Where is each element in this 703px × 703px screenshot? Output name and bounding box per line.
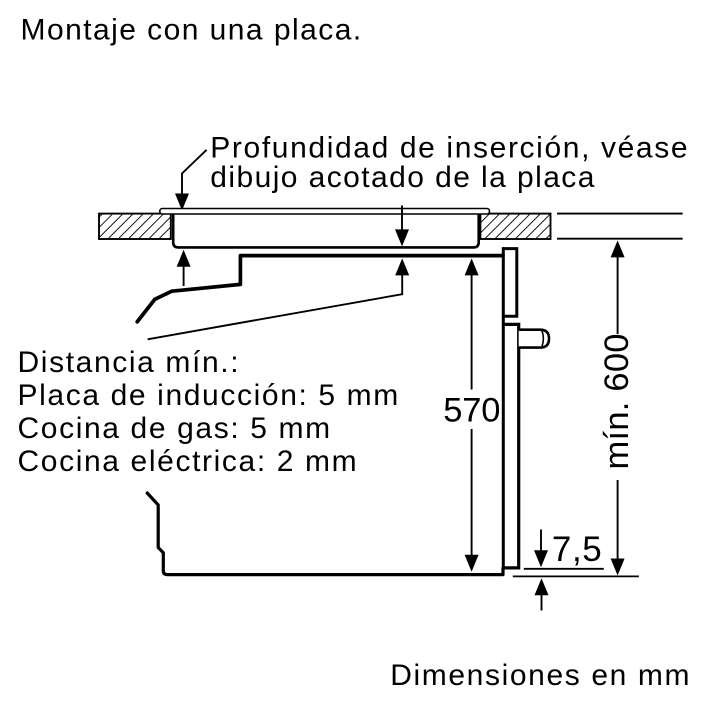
svg-text:Profundidad de inserción, véas: Profundidad de inserción, véase [210,131,689,164]
svg-text:Dimensiones en mm: Dimensiones en mm [390,659,691,692]
svg-text:Montaje con una placa.: Montaje con una placa. [21,14,363,47]
svg-text:Cocina eléctrica: 2 mm: Cocina eléctrica: 2 mm [18,445,359,478]
svg-text:Cocina de gas: 5 mm: Cocina de gas: 5 mm [18,412,332,445]
svg-text:mín. 600: mín. 600 [598,333,636,469]
svg-text:Placa de inducción: 5 mm: Placa de inducción: 5 mm [18,379,400,412]
svg-text:570: 570 [443,391,500,429]
svg-text:7,5: 7,5 [552,530,602,569]
svg-text:Distancia mín.:: Distancia mín.: [18,346,241,379]
svg-text:dibujo acotado de la placa: dibujo acotado de la placa [210,161,596,194]
